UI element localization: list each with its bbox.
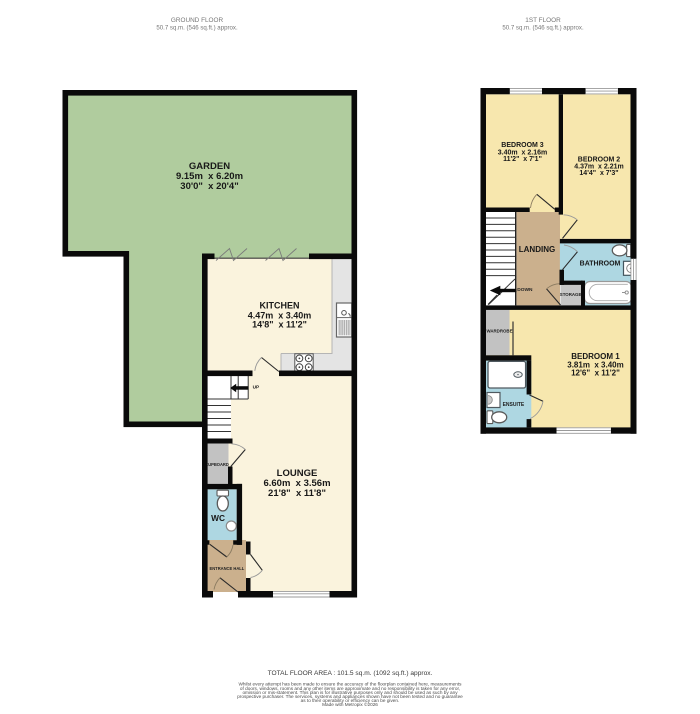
- svg-text:14'8" x 11'2": 14'8" x 11'2": [252, 319, 307, 329]
- svg-text:WC: WC: [211, 513, 225, 523]
- svg-text:TOTAL FLOOR AREA : 101.5 sq.m.: TOTAL FLOOR AREA : 101.5 sq.m. (1092 sq.…: [268, 670, 433, 677]
- svg-text:ENTRANCE HALL: ENTRANCE HALL: [210, 566, 245, 571]
- svg-text:BATHROOM: BATHROOM: [580, 261, 621, 268]
- svg-text:14'4" x 7'3": 14'4" x 7'3": [579, 170, 618, 177]
- svg-text:DOWN: DOWN: [517, 287, 533, 293]
- svg-text:BEDROOM 3: BEDROOM 3: [501, 142, 544, 149]
- svg-text:50.7 sq.m. (546 sq.ft.) approx: 50.7 sq.m. (546 sq.ft.) approx.: [502, 25, 584, 32]
- svg-text:GROUND FLOOR: GROUND FLOOR: [171, 17, 224, 24]
- svg-text:21'8" x 11'8": 21'8" x 11'8": [268, 488, 326, 499]
- svg-text:30'0" x 20'4": 30'0" x 20'4": [180, 181, 238, 192]
- svg-text:WARDROBE: WARDROBE: [486, 329, 512, 334]
- svg-text:UP: UP: [253, 384, 260, 390]
- svg-text:LANDING: LANDING: [519, 245, 555, 254]
- svg-text:11'2" x 7'1": 11'2" x 7'1": [503, 156, 542, 163]
- svg-text:BEDROOM 2: BEDROOM 2: [578, 156, 621, 163]
- svg-text:STORAGE: STORAGE: [560, 292, 582, 297]
- svg-text:1ST FLOOR: 1ST FLOOR: [525, 17, 561, 24]
- svg-text:ENSUITE: ENSUITE: [503, 402, 525, 408]
- svg-text:KITCHEN: KITCHEN: [260, 301, 300, 311]
- svg-text:Made with Metropix ©2026: Made with Metropix ©2026: [322, 701, 378, 707]
- svg-text:12'6" x 11'2": 12'6" x 11'2": [571, 368, 620, 377]
- svg-text:50.7 sq.m. (546 sq.ft.) approx: 50.7 sq.m. (546 sq.ft.) approx.: [156, 25, 238, 32]
- svg-text:CUPBOARD: CUPBOARD: [205, 462, 229, 467]
